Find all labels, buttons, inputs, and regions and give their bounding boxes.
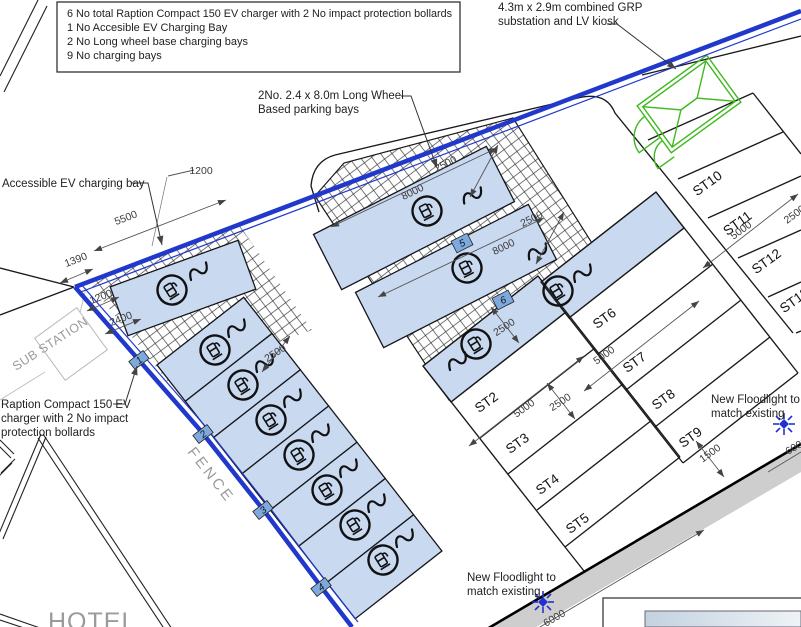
- attenuation-tank: [603, 598, 801, 627]
- note-line-3: 2 No Long wheel base charging bays: [67, 36, 249, 48]
- stand-label-st13: ST13: [777, 285, 801, 316]
- dim-5500: 5500: [113, 208, 139, 228]
- note-line-4: 9 No charging bays: [67, 50, 162, 62]
- stand-label-st10: ST10: [690, 168, 725, 199]
- note-line-2: 1 No Accesible EV Charging Bay: [67, 22, 228, 34]
- raption-note-line2: charger with 2 No impact: [1, 413, 129, 425]
- floodlight-note-bottom-line2: match existing: [467, 586, 541, 598]
- floodlight-note-right-line2: match existing: [711, 408, 785, 420]
- grp-kiosk-note-line2: substation and LV kiosk: [498, 16, 619, 28]
- grp-kiosk-note-line1: 4.3m x 2.9m combined GRP: [498, 2, 643, 14]
- site-plan-drawing: 1 2 3 4 5 6: [0, 0, 801, 627]
- long-wheel-note-line2: Based parking bays: [258, 104, 359, 116]
- substation-label: SUB STATION: [10, 314, 91, 373]
- long-wheel-note-line1: 2No. 2.4 x 8.0m Long Wheel: [258, 90, 404, 102]
- raption-note-line1: Raption Compact 150 EV: [1, 399, 131, 411]
- note-line-1: 6 No total Raption Compact 150 EV charge…: [67, 8, 452, 20]
- notes-box: 6 No total Raption Compact 150 EV charge…: [57, 2, 460, 72]
- raption-note-line3: protection bollards: [1, 427, 95, 439]
- dim-2500-right-edge: 2500: [782, 203, 801, 227]
- accessible-bay-note: Accessible EV charging bay: [2, 178, 145, 190]
- dim-1200-top: 1200: [189, 165, 213, 177]
- hotel-label: HOTEL: [48, 608, 136, 627]
- floodlight-note-bottom-line1: New Floodlight to: [467, 572, 556, 584]
- floodlight-note-right-line1: New Floodlight to: [711, 394, 800, 406]
- dim-1390: 1390: [63, 250, 89, 270]
